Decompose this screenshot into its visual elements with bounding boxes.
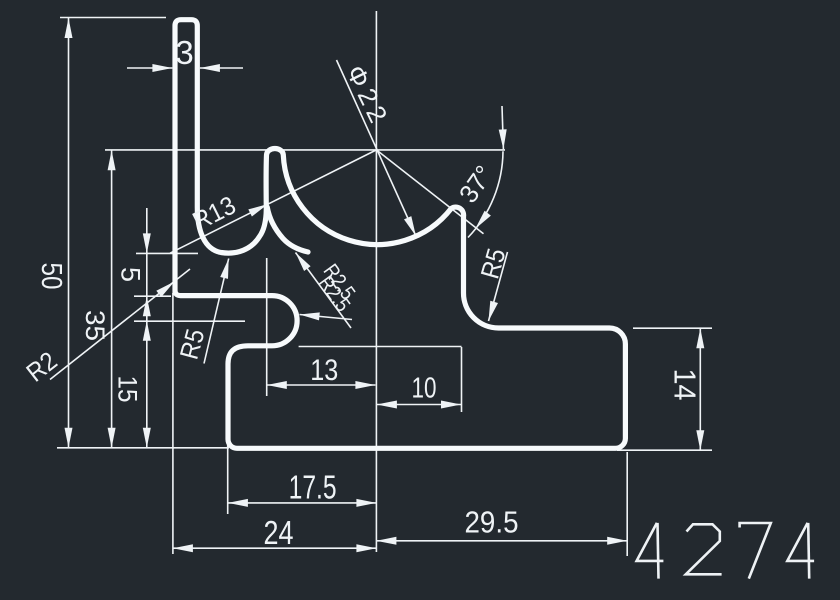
svg-text:14: 14 xyxy=(668,369,703,401)
svg-text:50: 50 xyxy=(35,263,67,290)
svg-text:35: 35 xyxy=(80,310,110,341)
svg-text:13: 13 xyxy=(310,354,338,387)
svg-text:3: 3 xyxy=(175,34,193,71)
svg-text:24: 24 xyxy=(264,514,294,551)
svg-text:29.5: 29.5 xyxy=(465,505,519,540)
svg-text:15: 15 xyxy=(113,376,143,403)
svg-text:10: 10 xyxy=(412,373,437,405)
svg-text:17.5: 17.5 xyxy=(289,469,337,506)
svg-text:5: 5 xyxy=(116,267,146,282)
